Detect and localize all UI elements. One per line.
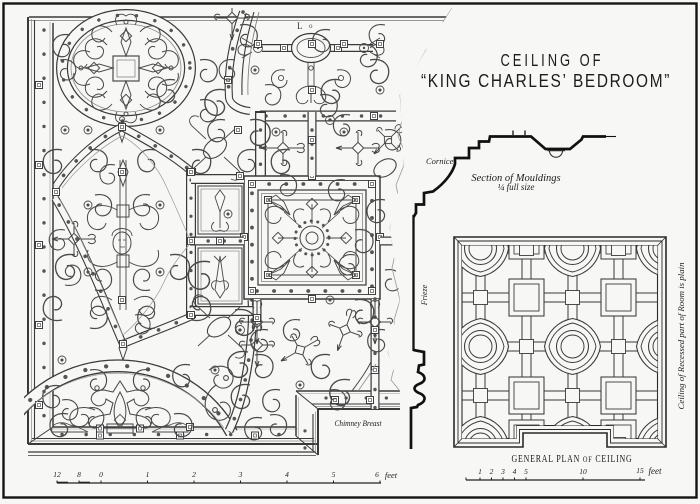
svg-text:Cornice: Cornice [426,156,454,166]
svg-text:15: 15 [636,466,644,475]
svg-text:4: 4 [513,467,517,476]
svg-text:4: 4 [285,470,289,479]
svg-text:5: 5 [332,470,336,479]
svg-text:8: 8 [77,470,81,479]
svg-text:12: 12 [53,470,61,479]
svg-text:“KING CHARLES’ BEDROOM”: “KING CHARLES’ BEDROOM” [421,70,671,91]
svg-text:Frieze: Frieze [420,284,429,306]
svg-text:1: 1 [146,470,150,479]
svg-text:1: 1 [478,467,482,476]
svg-text:Chimney Breast: Chimney Breast [335,419,383,428]
svg-text:feet: feet [649,466,662,476]
svg-text:¼ full size: ¼ full size [498,182,535,192]
svg-text:L: L [297,21,303,31]
svg-text:CEILING OF: CEILING OF [501,50,604,70]
svg-text:3: 3 [238,470,243,479]
svg-text:3: 3 [500,467,505,476]
svg-text:o: o [309,22,313,30]
svg-text:10: 10 [579,467,587,476]
svg-text:feet: feet [385,470,398,480]
svg-text:2: 2 [490,467,494,476]
svg-text:GENERAL PLAN OF CEILING: GENERAL PLAN OF CEILING [512,454,633,465]
svg-text:0: 0 [99,470,103,479]
svg-text:Ceiling of Recessed part of Ro: Ceiling of Recessed part of Room is plai… [676,263,686,410]
svg-text:2: 2 [192,470,196,479]
svg-text:6: 6 [375,470,379,479]
svg-text:5: 5 [524,467,528,476]
